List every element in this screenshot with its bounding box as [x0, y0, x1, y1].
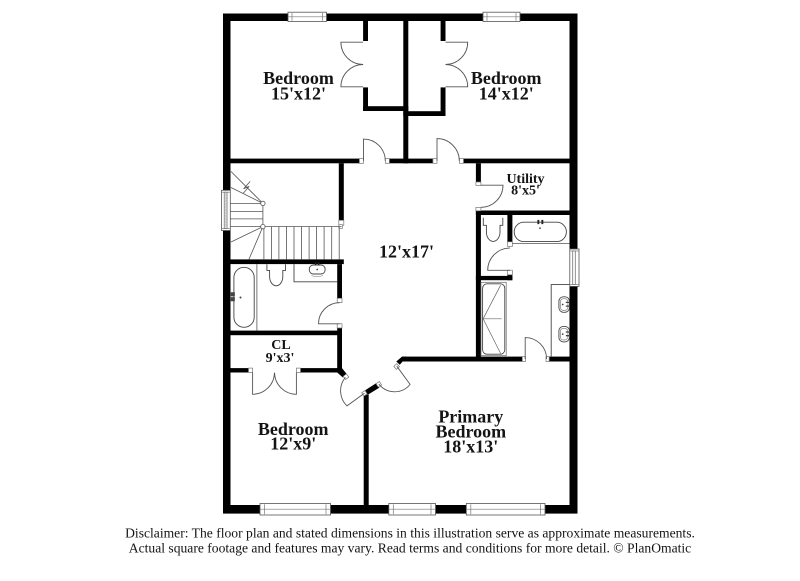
svg-text:12'x17': 12'x17' [379, 242, 434, 262]
svg-text:18'x13': 18'x13' [443, 437, 498, 457]
svg-text:Actual square footage and feat: Actual square footage and features may v… [129, 541, 691, 556]
svg-text:14'x12': 14'x12' [479, 83, 534, 103]
svg-text:Disclaimer: The floor plan and: Disclaimer: The floor plan and stated di… [125, 526, 695, 541]
svg-text:9'x3': 9'x3' [266, 351, 295, 366]
svg-text:15'x12': 15'x12' [271, 83, 326, 103]
svg-text:8'x5': 8'x5' [511, 184, 540, 199]
svg-text:12'x9': 12'x9' [270, 434, 316, 454]
